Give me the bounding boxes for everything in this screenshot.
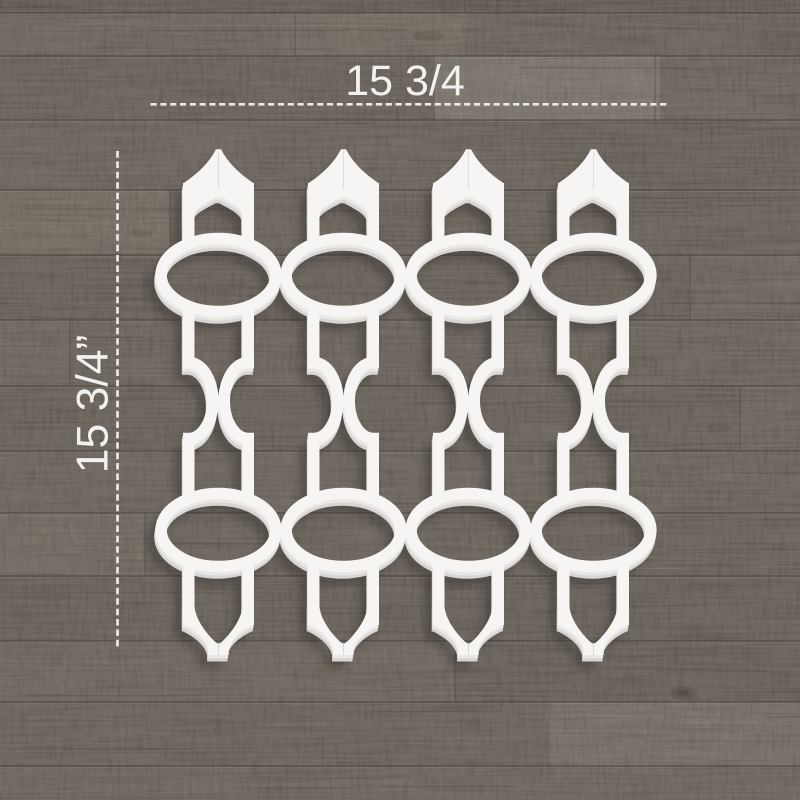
svg-text:15 3/4: 15 3/4 [345,57,465,105]
svg-text:15 3/4”: 15 3/4” [69,335,118,474]
